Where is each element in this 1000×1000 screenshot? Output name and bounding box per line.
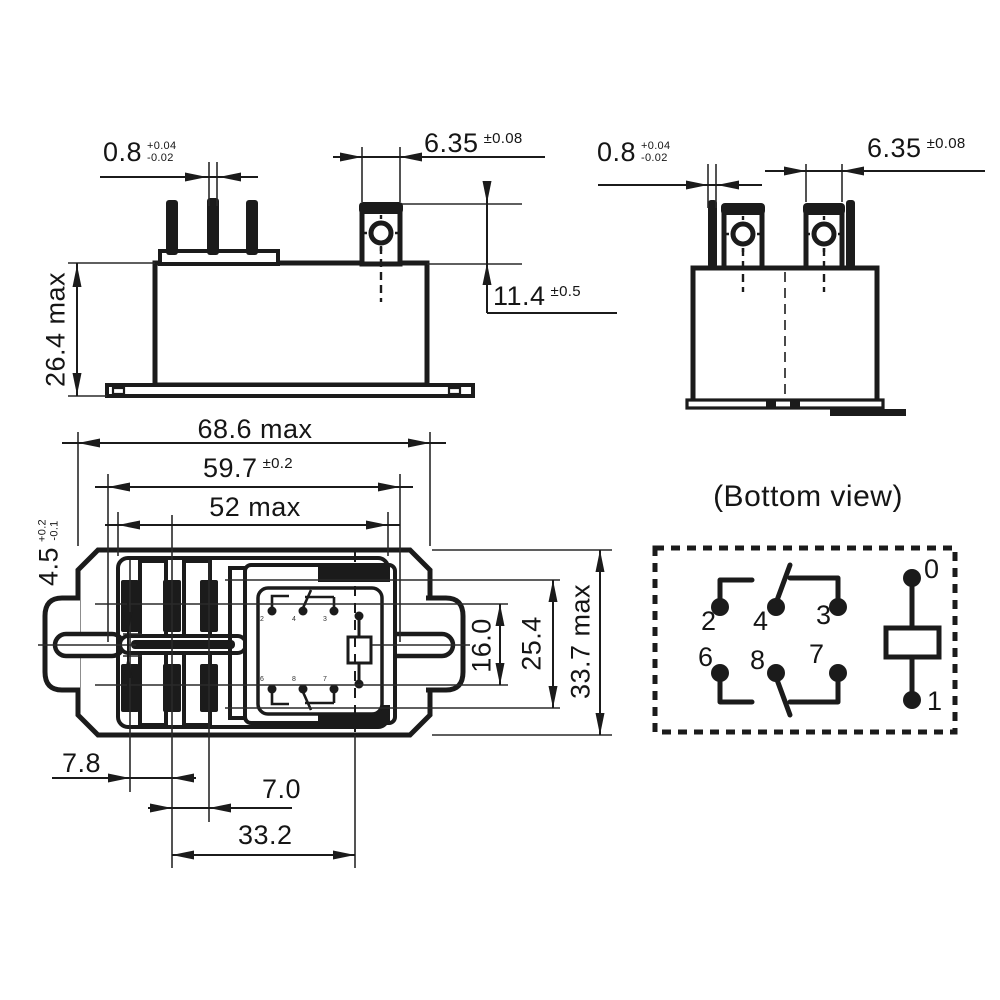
dim-tab-column-offset: 33.2 bbox=[238, 822, 293, 849]
dim-overall-length: 68.6 max bbox=[195, 416, 315, 443]
pin-label-1: 1 bbox=[927, 688, 942, 715]
dim-case-length: 52 max bbox=[205, 494, 305, 521]
dim-mounting-slot-width: 4.5 +0.2 -0.1 bbox=[36, 505, 63, 601]
pin-label-3: 3 bbox=[816, 602, 831, 629]
mini-pin-label-7: 7 bbox=[323, 676, 327, 683]
bottom-view-title: (Bottom view) bbox=[648, 482, 968, 512]
dim-contact-pin-span: 16.0 bbox=[469, 611, 496, 681]
bottom-view-schematic bbox=[655, 548, 955, 732]
mounting-flange-edge bbox=[830, 409, 906, 416]
terminal-hole-icon bbox=[371, 223, 391, 243]
pin-label-2: 2 bbox=[701, 608, 716, 635]
mini-pin-label-8: 8 bbox=[292, 676, 296, 683]
pin-label-6: 6 bbox=[698, 644, 713, 671]
dim-mounting-pitch: 59.7 ±0.2 bbox=[203, 455, 293, 482]
dim-pin-pitch-left: 7.8 bbox=[62, 750, 101, 777]
dim-tab-height: 11.4 ±0.5 bbox=[493, 283, 581, 310]
tol-minus: -0.02 bbox=[147, 152, 176, 164]
mini-pin-label-6: 6 bbox=[260, 676, 264, 683]
pcb-pins-front bbox=[166, 198, 258, 255]
tol-symmetric: ±0.08 bbox=[484, 131, 523, 146]
dim-pin-thickness-side: 0.8 +0.04 -0.02 bbox=[597, 139, 670, 166]
pin-label-7: 7 bbox=[809, 641, 824, 668]
relay-case-front bbox=[155, 263, 427, 385]
dim-value: 0.8 bbox=[103, 139, 142, 166]
tol-plus: +0.04 bbox=[147, 140, 176, 152]
dim-case-width: 33.7 max bbox=[568, 578, 595, 706]
pin-label-4: 4 bbox=[753, 608, 768, 635]
dim-tab-width-side: 6.35 ±0.08 bbox=[867, 135, 966, 162]
dim-case-height: 26.4 max bbox=[43, 265, 70, 395]
relay-dimension-drawing: 0.8 +0.04 -0.02 6.35 ±0.08 11.4 ±0.5 26.… bbox=[0, 0, 1000, 1000]
dim-tab-width-front: 6.35 ±0.08 bbox=[424, 130, 523, 157]
dim-contact-row-pitch: 25.4 bbox=[519, 609, 546, 679]
mini-pin-label-2: 2 bbox=[260, 616, 264, 623]
pin-label-8: 8 bbox=[750, 647, 765, 674]
mini-pin-label-4: 4 bbox=[292, 616, 296, 623]
side-view-side bbox=[687, 200, 906, 416]
dim-pin-thickness-front: 0.8 +0.04 -0.02 bbox=[103, 139, 176, 166]
side-view-front bbox=[107, 198, 473, 396]
mounting-base bbox=[107, 385, 473, 396]
mini-pin-label-3: 3 bbox=[323, 616, 327, 623]
pin-label-0: 0 bbox=[924, 556, 939, 583]
dim-pin-pitch-mid: 7.0 bbox=[262, 776, 301, 803]
